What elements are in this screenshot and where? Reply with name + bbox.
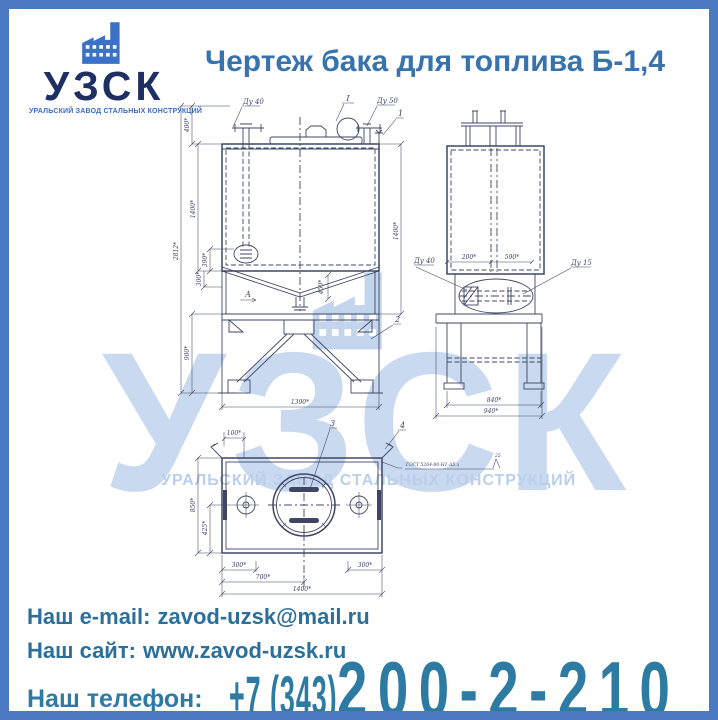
fitting-right-label: Ду 50	[376, 97, 398, 105]
phone-row: Наш телефон: +7 (343) 200-2-210	[27, 659, 718, 719]
callout-4: 4	[399, 421, 405, 430]
dim-top-height: 400*	[184, 118, 191, 133]
dim-425: 425*	[202, 521, 209, 536]
company-logo: УЗСК УРАЛЬСКИЙ ЗАВОД СТАЛЬНЫХ КОНСТРУКЦИ…	[29, 17, 179, 115]
detail-dy15-label: Ду 15	[570, 259, 592, 267]
dim-300-left: 300*	[232, 562, 246, 569]
section-mark-a: А	[244, 290, 251, 299]
factory-icon	[78, 19, 130, 65]
page: УЗСК УРАЛЬСКИЙ ЗАВОД СТАЛЬНЫХ КОНСТРУКЦИ…	[0, 0, 718, 720]
dim-700: 700*	[256, 574, 270, 581]
dim-drain-300: 300*	[196, 272, 203, 286]
logo-text: УЗСК	[29, 65, 179, 108]
dim-1400: 1400*	[293, 586, 311, 593]
dim-100: 100*	[227, 430, 241, 437]
email-label: Наш e-mail:	[27, 604, 150, 629]
phone-label: Наш телефон:	[27, 685, 203, 719]
callout-2: 2	[394, 315, 400, 324]
dim-funnel: 450*	[318, 280, 325, 295]
email-row: Наш e-mail:zavod-uzsk@mail.ru	[27, 604, 370, 630]
dim-940: 940*	[484, 408, 498, 415]
technical-drawing: 2812* 400* 1400* 390* 300* 900* 1400* 13…	[164, 91, 718, 606]
dim-tank-height-right: 1400*	[393, 222, 400, 240]
dim-840: 840*	[487, 397, 501, 404]
weld-note: ГОСТ 5264-80-Н1-Δ5 з	[405, 462, 460, 468]
fitting-left-label: Ду 40	[242, 98, 264, 106]
email-value: zavod-uzsk@mail.ru	[157, 604, 369, 629]
dim-drain-390: 390*	[202, 253, 209, 267]
front-view: 2812* 400* 1400* 390* 300* 900* 1400* 13…	[173, 94, 404, 410]
logo-subtitle: УРАЛЬСКИЙ ЗАВОД СТАЛЬНЫХ КОНСТРУКЦИЙ	[29, 108, 179, 115]
view-mark-i: I	[345, 94, 350, 103]
callout-3: 3	[330, 419, 335, 428]
callout-1: 1	[398, 109, 403, 118]
phone-number: 200-2-210	[337, 660, 680, 719]
weld-flag: 25	[494, 453, 501, 459]
phone-code: +7 (343)	[229, 674, 338, 719]
dim-200: 200*	[461, 254, 476, 261]
page-title: Чертеж бака для топлива Б-1,4	[205, 45, 665, 79]
plan-view: 100* 850* 425* 300* 300* 700* 1400* 3 4 …	[190, 419, 501, 597]
dim-support-height: 900*	[184, 346, 191, 360]
dim-tank-height-left: 1400*	[190, 200, 197, 218]
dim-850: 850*	[190, 498, 197, 512]
dim-300-right: 300*	[358, 562, 372, 569]
dim-width: 1390*	[291, 399, 309, 406]
dim-overall-height: 2812*	[173, 242, 180, 261]
detail-dy40-label: Ду 40	[413, 257, 435, 265]
side-view: 200* 590* 840* 940* Ду 40 Ду 15	[413, 111, 592, 419]
dim-590: 590*	[505, 254, 519, 261]
